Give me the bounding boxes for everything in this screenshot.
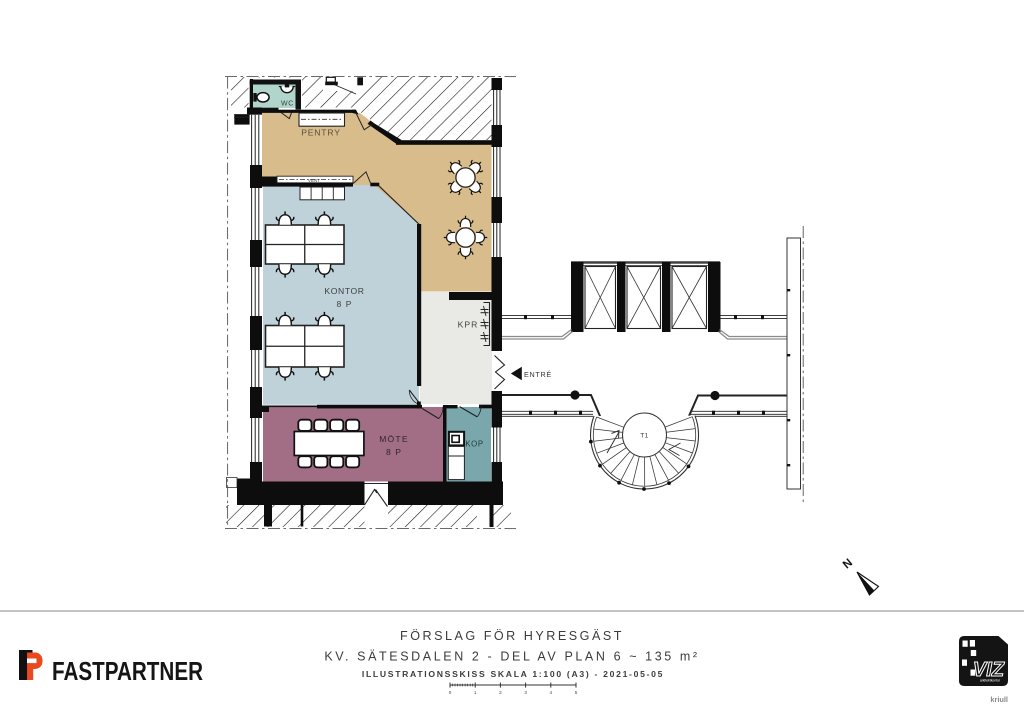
- svg-text:KONTOR: KONTOR: [324, 286, 364, 296]
- svg-text:T1: T1: [640, 433, 649, 440]
- svg-text:FASTPARTNER: FASTPARTNER: [52, 656, 203, 686]
- svg-text:4: 4: [550, 690, 553, 695]
- svg-text:PENTRY: PENTRY: [301, 128, 341, 138]
- svg-text:VENT: VENT: [308, 178, 321, 183]
- svg-text:5: 5: [575, 690, 578, 695]
- svg-text:KV. SÄTESDALEN 2 - DEL AV PLAN: KV. SÄTESDALEN 2 - DEL AV PLAN 6 ~ 135 m…: [324, 650, 699, 664]
- svg-text:8 P: 8 P: [337, 299, 353, 309]
- svg-text:1: 1: [474, 690, 477, 695]
- svg-text:3: 3: [524, 690, 527, 695]
- svg-text:WC: WC: [281, 101, 294, 108]
- svg-text:MÖTE: MÖTE: [379, 434, 409, 444]
- svg-text:kriull: kriull: [990, 695, 1008, 704]
- svg-text:KPR: KPR: [458, 320, 479, 330]
- svg-text:ILLUSTRATIONSSKISS SKALA 1:100: ILLUSTRATIONSSKISS SKALA 1:100 (A3) - 20…: [362, 669, 664, 679]
- svg-text:ENTRÉ: ENTRÉ: [524, 370, 552, 379]
- svg-text:0: 0: [449, 690, 452, 695]
- svg-text:KOP: KOP: [465, 440, 483, 449]
- svg-text:arkitektkontor: arkitektkontor: [980, 679, 1001, 683]
- svg-text:2: 2: [499, 690, 502, 695]
- svg-text:FÖRSLAG FÖR HYRESGÄST: FÖRSLAG FÖR HYRESGÄST: [400, 629, 624, 643]
- svg-text:8 P: 8 P: [386, 447, 402, 457]
